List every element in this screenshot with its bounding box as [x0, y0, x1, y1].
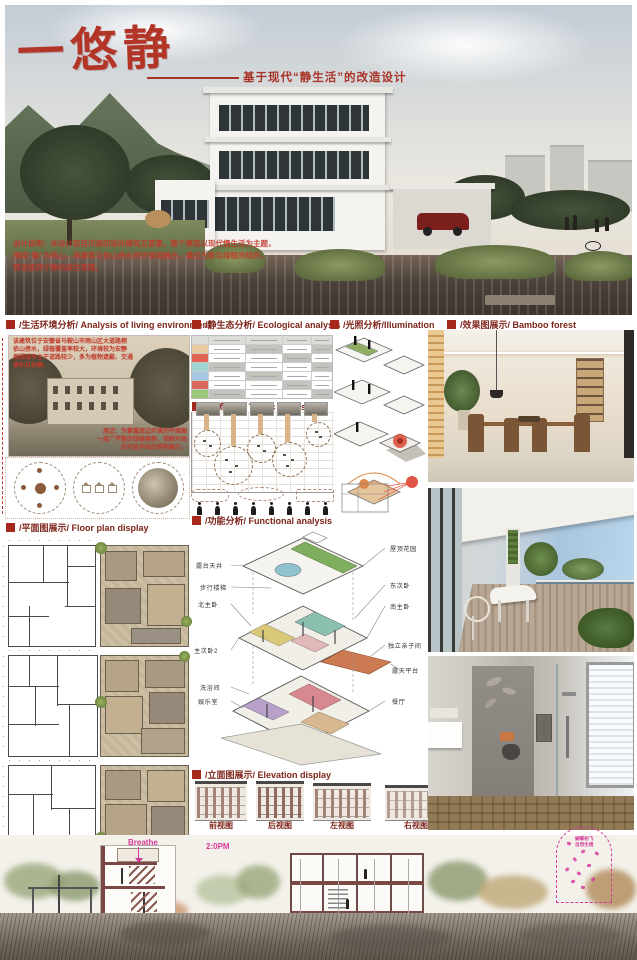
- traffic-analysis-chart: - - - -: [191, 412, 334, 493]
- house-roof-slab: [203, 87, 393, 93]
- cad-plan-floor2: [8, 655, 98, 757]
- house-floor-slab: [205, 137, 391, 142]
- trees: [510, 190, 630, 230]
- breathe-annotation: Breathe: [128, 838, 158, 847]
- table-row: [192, 371, 332, 380]
- traffic-callout-cloud: [238, 487, 284, 501]
- design-note-line: 营造悠然宁静的居住氛围。: [13, 262, 103, 273]
- chair: [504, 418, 519, 452]
- textured-plan-floor1: [100, 545, 189, 647]
- table-header-row: [192, 336, 332, 344]
- photo-caption: 依山傍水，绿植覆盖率较大，环境较为安静: [13, 346, 127, 354]
- shower-head: [562, 692, 576, 696]
- textured-plan-floor2: [100, 655, 189, 757]
- functional-label: 洗浴间: [200, 683, 220, 692]
- red-square-bullet: [447, 320, 456, 329]
- photo-caption: 周围城市主干道路较少，多为植物遮蔽、交通: [13, 354, 133, 362]
- dining-table: [474, 422, 586, 426]
- design-note-line: 设计说明：本设计取自河南四班的建筑五要素，整个建筑以现代慢生活为主题，: [13, 238, 276, 249]
- large-tree: [20, 125, 130, 220]
- functional-label: 北主卧: [198, 600, 218, 609]
- foreground-plant: [578, 608, 634, 648]
- functional-label: 露台天井: [196, 561, 223, 570]
- mosaic-floor: [428, 796, 634, 830]
- bottom-section-band: Breathe 2:0PM 蝴蝶纷飞 自然生境: [0, 835, 637, 960]
- elevation-back: [256, 781, 304, 820]
- vertical-garden: [508, 530, 518, 564]
- pergola-beam: [28, 887, 98, 889]
- section-header-floor-plan: /平面图展示/ Floor plan display: [6, 521, 149, 534]
- section-header-living-env: /生活环境分析/ Analysis of living environment: [6, 318, 211, 331]
- functional-label: 露天平台: [392, 666, 419, 675]
- functional-label: 餐厅: [392, 697, 405, 706]
- functional-label: 步行楼梯: [200, 583, 227, 592]
- poster-title: 一悠静: [16, 8, 177, 83]
- elevation-label: 后视图: [256, 820, 304, 831]
- chair: [468, 414, 484, 452]
- cad-plan-floor1: [8, 545, 96, 647]
- functional-label: 独立亲子间: [388, 641, 421, 650]
- person-silhouette: [565, 217, 569, 230]
- section-header-illumination: /光照分析/Illumination: [330, 318, 435, 331]
- site-photo: 该建筑位于安徽省马鞍山市雨山区大道路侧 依山傍水，绿植覆盖率较大，环境较为安静 …: [8, 335, 190, 457]
- shower-bar: [566, 716, 569, 758]
- render-bathroom: [428, 656, 634, 830]
- vanity-items: [430, 708, 458, 718]
- site-diagram-pavilions: [73, 462, 125, 514]
- balcony-plant: [562, 558, 604, 580]
- house-window-band: [219, 105, 369, 131]
- traffic-circle: [272, 442, 307, 477]
- elevation-label: 左视图: [313, 820, 371, 831]
- person-silhouette: [595, 219, 599, 232]
- section-header-ecological: /静生态分析/ Ecological analysis: [192, 318, 341, 331]
- bicycle: [585, 241, 601, 251]
- table-row: [192, 353, 332, 362]
- wall-hung-toilet: [502, 744, 520, 760]
- functional-label: 东次卧: [390, 581, 410, 590]
- red-square-bullet: [6, 523, 15, 532]
- design-note-line: 围绕“静”为核心，将建筑与依山傍水的环境相融合，通过光影与绿植的组织，: [13, 250, 268, 261]
- section-title: /静生态分析/ Ecological analysis: [205, 318, 341, 331]
- section-title: /立面图展示/ Elevation display: [205, 768, 331, 781]
- reeds: [435, 245, 555, 279]
- traffic-bar: [312, 414, 317, 422]
- red-square-bullet: [192, 770, 201, 779]
- glass-doors: [428, 488, 462, 652]
- functional-label: 主次卧2: [194, 646, 218, 655]
- photo-caption: 便利且安静。: [13, 362, 49, 370]
- flush-plate: [500, 732, 514, 741]
- tea-set: [518, 416, 540, 422]
- red-square-bullet: [6, 320, 15, 329]
- car-wheel: [423, 227, 432, 236]
- photo-caption: 一层广平整的绿植拥抱、视野开阔: [97, 436, 187, 444]
- butterfly-annotation: 蝴蝶纷飞 自然生境: [556, 827, 612, 903]
- cove-light: [428, 352, 634, 354]
- reeds: [565, 251, 632, 281]
- traffic-bar: [204, 414, 209, 430]
- window-blinds: [428, 330, 444, 460]
- red-square-bullet: [192, 320, 201, 329]
- photo-caption: 该建筑位于安徽省马鞍山市雨山区大道路侧: [13, 338, 127, 346]
- chair: [574, 414, 590, 452]
- traffic-bar: [258, 414, 263, 434]
- shower-glass: [556, 664, 558, 804]
- functional-label: 南主卧: [390, 602, 410, 611]
- chair: [532, 418, 547, 452]
- elevation-front: [195, 781, 247, 820]
- photo-caption: 的河道手段的照明展示。: [121, 444, 187, 452]
- elevation-label: 前视图: [195, 820, 247, 831]
- functional-label: 屋顶花园: [390, 544, 417, 553]
- photo-caption: 周边：为掌握周边环境的平面图: [103, 428, 187, 436]
- shower-niche: [536, 714, 552, 742]
- pendant-lamp: [490, 390, 503, 398]
- elevation-left: [313, 783, 371, 820]
- red-square-bullet: [192, 516, 201, 525]
- tent: [145, 210, 171, 228]
- functional-label: 娱乐室: [198, 697, 218, 706]
- traffic-bar: [231, 414, 236, 446]
- render-balcony: [428, 488, 634, 652]
- site-diagram-row: [5, 457, 190, 519]
- section-header-elevation: /立面图展示/ Elevation display: [192, 768, 331, 781]
- stair-flight: [328, 889, 348, 909]
- floor: [428, 458, 634, 482]
- balcony-plant: [524, 542, 558, 576]
- traffic-callout: [191, 489, 229, 502]
- house-floor-slab: [201, 185, 397, 190]
- house-window-band: [215, 197, 335, 231]
- site-diagram-dots: [14, 462, 66, 514]
- butterfly-note: 蝴蝶纷飞 自然生境: [575, 836, 593, 847]
- traffic-callout: [296, 489, 334, 502]
- breathe-arrowhead: [135, 858, 143, 863]
- table-row: [192, 380, 332, 389]
- design-poster: 一悠静 基于现代“静生活”的改造设计 设计说明：本设计取自河南四班的建筑五要素，…: [0, 0, 637, 960]
- person-silhouette: [605, 217, 609, 231]
- pendant-cord: [496, 330, 497, 392]
- stepping-stones: [485, 295, 555, 305]
- subtitle-dash: [147, 77, 239, 79]
- site-diagram-photo: [132, 462, 184, 514]
- bookshelf: [576, 358, 604, 422]
- section-title: /光照分析/Illumination: [343, 318, 435, 331]
- indoor-plant: [444, 370, 480, 412]
- bright-window: [586, 662, 634, 788]
- section-title: /平面图展示/ Floor plan display: [19, 521, 149, 534]
- house-window-band: [219, 151, 369, 179]
- poster-subtitle: 基于现代“静生活”的改造设计: [243, 69, 407, 85]
- hero-render: 一悠静 基于现代“静生活”的改造设计 设计说明：本设计取自河南四班的建筑五要素，…: [5, 5, 632, 315]
- illumination-diagrams: [334, 334, 426, 516]
- table-row: [192, 344, 332, 353]
- render-dining-room: [428, 330, 634, 482]
- ecological-analysis-table: [191, 335, 333, 399]
- traffic-circle: [306, 422, 331, 447]
- side-table: [464, 596, 490, 622]
- red-square-bullet: [330, 320, 339, 329]
- time-annotation: 2:0PM: [206, 842, 230, 851]
- stair-hatch: [131, 892, 157, 912]
- stair-hatch: [129, 866, 155, 884]
- section-title: /生活环境分析/ Analysis of living environment: [19, 318, 211, 331]
- traffic-bar: [285, 414, 290, 442]
- red-dashed-divider: [2, 338, 3, 514]
- car-wheel: [453, 227, 462, 236]
- table-row: [192, 389, 332, 398]
- vanity: [428, 722, 462, 748]
- reeds: [295, 249, 385, 281]
- person-silhouette: [573, 215, 577, 230]
- table-row: [192, 362, 332, 371]
- feature-wall: [472, 666, 534, 796]
